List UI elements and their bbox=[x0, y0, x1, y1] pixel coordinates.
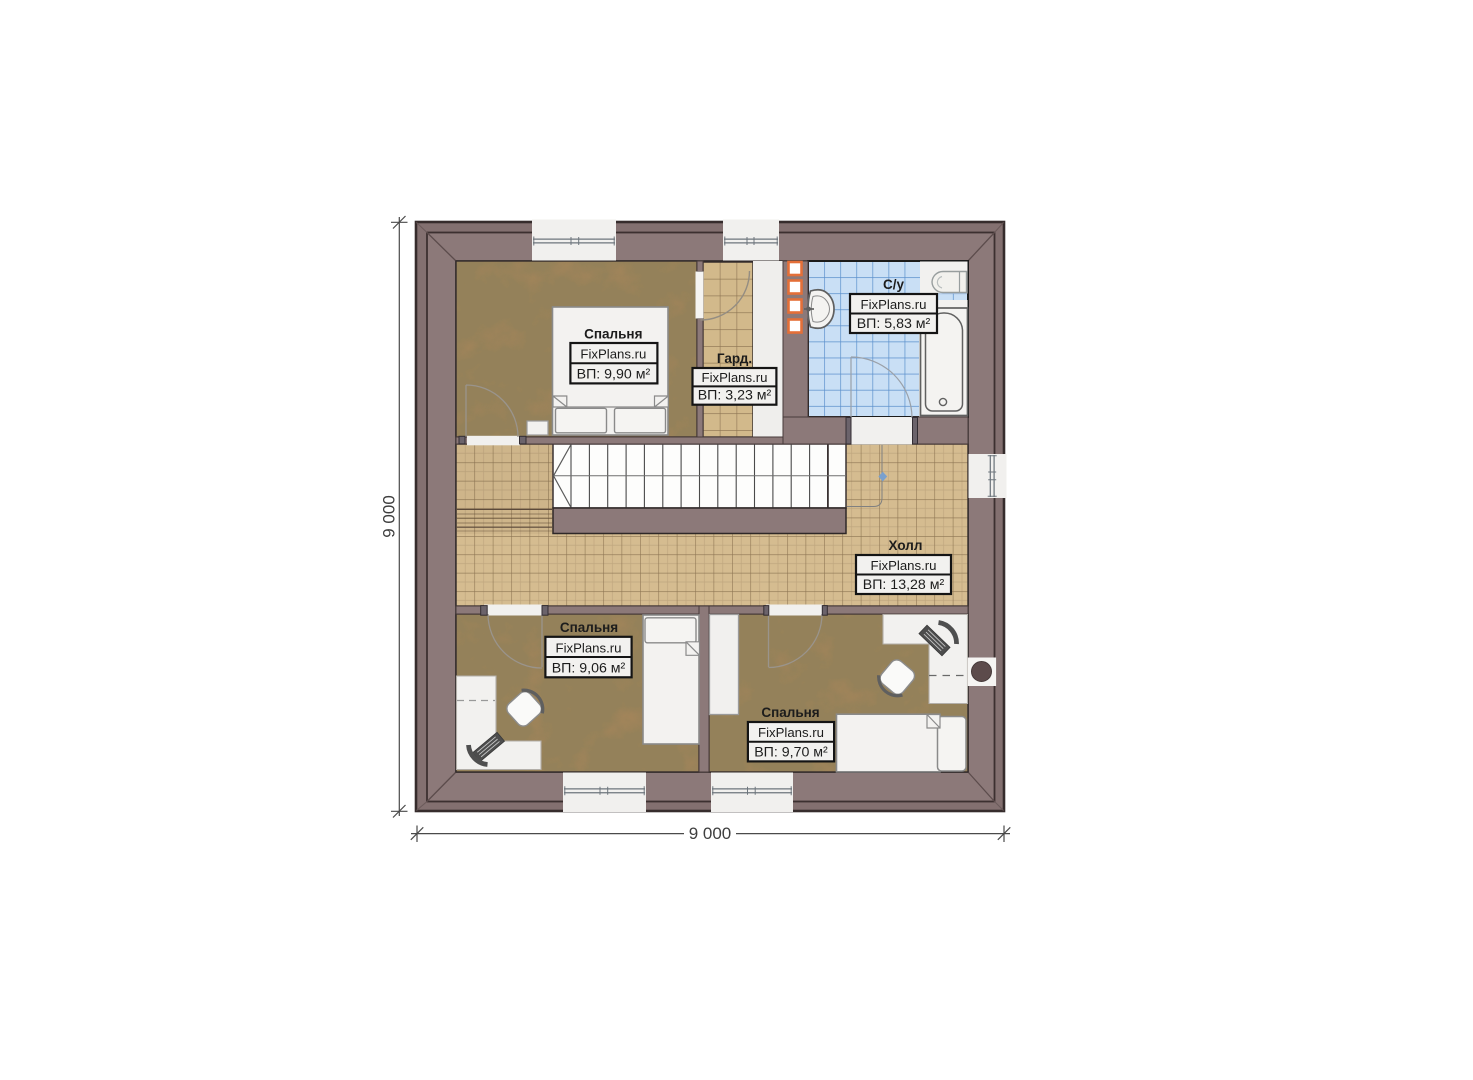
svg-text:С/у: С/у bbox=[883, 277, 905, 292]
svg-text:ВП: 9,06 м²: ВП: 9,06 м² bbox=[552, 660, 626, 676]
svg-text:FixPlans.ru: FixPlans.ru bbox=[871, 558, 937, 573]
svg-text:Спальня: Спальня bbox=[584, 327, 642, 342]
svg-text:Гард.: Гард. bbox=[717, 351, 752, 366]
svg-text:Спальня: Спальня bbox=[761, 705, 819, 720]
svg-text:FixPlans.ru: FixPlans.ru bbox=[556, 641, 622, 656]
svg-text:ВП: 9,70 м²: ВП: 9,70 м² bbox=[754, 744, 828, 760]
svg-text:ВП: 13,28 м²: ВП: 13,28 м² bbox=[863, 577, 945, 593]
svg-text:FixPlans.ru: FixPlans.ru bbox=[702, 370, 768, 385]
svg-text:9 000: 9 000 bbox=[689, 824, 732, 843]
svg-text:9 000: 9 000 bbox=[380, 495, 399, 538]
svg-text:FixPlans.ru: FixPlans.ru bbox=[861, 297, 927, 312]
svg-text:ВП: 3,23 м²: ВП: 3,23 м² bbox=[698, 388, 772, 404]
svg-text:Спальня: Спальня bbox=[560, 620, 618, 635]
svg-text:FixPlans.ru: FixPlans.ru bbox=[580, 346, 646, 361]
svg-text:ВП: 5,83 м²: ВП: 5,83 м² bbox=[857, 316, 931, 332]
svg-text:ВП: 9,90 м²: ВП: 9,90 м² bbox=[577, 367, 651, 383]
svg-text:FixPlans.ru: FixPlans.ru bbox=[758, 725, 824, 740]
svg-text:Холл: Холл bbox=[889, 538, 923, 553]
